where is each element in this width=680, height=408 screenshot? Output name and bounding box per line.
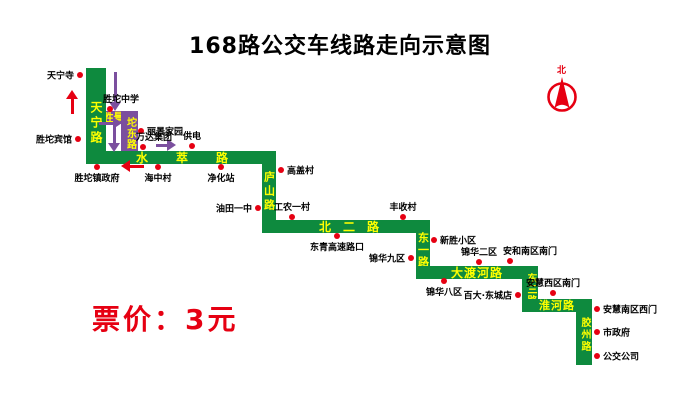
stop-dot-icon — [278, 167, 284, 173]
stop-dot-icon — [218, 164, 224, 170]
stop-label: 东青高速路口 — [310, 240, 364, 253]
stop-label: 净化站 — [207, 171, 234, 184]
stop-label: 供电 — [183, 129, 201, 142]
stop-dot-icon — [255, 205, 261, 211]
stop-dot-icon — [441, 278, 447, 284]
stop-dot-icon — [431, 237, 437, 243]
bus-stop: 海中村 — [155, 164, 161, 170]
stop-label: 海中村 — [144, 171, 171, 184]
stop-dot-icon — [515, 292, 521, 298]
bus-stop: 锦华二区 — [476, 259, 482, 265]
road-label: 东一路 — [418, 232, 429, 268]
stop-label: 丰收村 — [389, 200, 416, 213]
road-segment-beierlu: 北二路 — [262, 220, 430, 233]
stop-dot-icon — [140, 144, 146, 150]
stop-label: 锦华二区 — [461, 245, 497, 258]
road-label: 北二路 — [301, 221, 391, 233]
stop-dot-icon — [189, 143, 195, 149]
compass-icon — [540, 70, 584, 118]
stop-label: 万达集团 — [136, 130, 172, 143]
route-up-arrow-icon — [66, 90, 78, 114]
stop-label: 安和南区南门 — [503, 244, 557, 257]
road-segment-jiaozhoulu: 胶州路 — [576, 299, 592, 365]
road-label: 坨东路 — [125, 117, 135, 150]
stop-dot-icon — [550, 290, 556, 296]
stop-dot-icon — [594, 353, 600, 359]
stop-dot-icon — [77, 72, 83, 78]
stop-label: 安慧西区南门 — [526, 276, 580, 289]
stop-label: 工农一村 — [274, 200, 310, 213]
bus-stop: 安慧西区南门 — [550, 290, 556, 296]
stop-dot-icon — [408, 255, 414, 261]
bus-stop: 公交公司 — [594, 353, 600, 359]
bus-stop: 胜坨镇政府 — [94, 164, 100, 170]
stop-label: 百大·东城店 — [464, 289, 512, 302]
route-diagram: 168路公交车线路走向示意图 胜景路 坨东路 天宁路 水萃路 庐山路 北二路 东… — [0, 0, 680, 408]
bus-stop: 净化站 — [218, 164, 224, 170]
stop-label: 市政府 — [603, 326, 630, 339]
diagram-title: 168路公交车线路走向示意图 — [0, 28, 680, 60]
bus-stop: 胜坨宾馆 — [75, 136, 81, 142]
bus-stop: 东青高速路口 — [334, 233, 340, 239]
stop-label: 胜坨中学 — [103, 92, 139, 105]
stop-label: 胜坨镇政府 — [74, 171, 119, 184]
fare-notice: 票价：3元 — [92, 298, 238, 338]
stop-dot-icon — [476, 259, 482, 265]
stop-dot-icon — [289, 214, 295, 220]
bus-stop: 安和南区南门 — [507, 258, 513, 264]
road-segment-tianninglu: 天宁路 — [86, 68, 106, 164]
bus-stop: 丰收村 — [400, 214, 406, 220]
road-label: 淮河路 — [539, 300, 575, 311]
stop-dot-icon — [507, 258, 513, 264]
stop-dot-icon — [75, 136, 81, 142]
stop-label: 胜坨宾馆 — [36, 133, 72, 146]
stop-dot-icon — [400, 214, 406, 220]
bus-stop: 百大·东城店 — [515, 292, 521, 298]
bus-stop: 锦华九区 — [408, 255, 414, 261]
loop-down-arrow2-icon — [108, 126, 120, 153]
bus-stop: 油田一中 — [255, 205, 261, 211]
bus-stop: 高盖村 — [278, 167, 284, 173]
bus-stop: 供电 — [189, 143, 195, 149]
bus-stop: 天宁寺 — [77, 72, 83, 78]
bus-stop: 万达集团 — [140, 144, 146, 150]
stop-dot-icon — [594, 329, 600, 335]
stop-label: 安慧南区西门 — [603, 303, 657, 316]
road-label: 胶州路 — [579, 317, 589, 353]
road-label: 庐山路 — [264, 171, 275, 213]
stop-dot-icon — [334, 233, 340, 239]
road-segment-daduhelu: 大渡河路 — [416, 266, 538, 279]
bus-stop: 胜坨中学 — [107, 106, 113, 112]
stop-dot-icon — [94, 164, 100, 170]
stop-label: 锦华九区 — [369, 252, 405, 265]
stop-dot-icon — [155, 164, 161, 170]
stop-label: 天宁寺 — [47, 69, 74, 82]
bus-stop: 新胜小区 — [431, 237, 437, 243]
bus-stop: 安慧南区西门 — [594, 306, 600, 312]
bus-stop: 锦华八区 — [441, 278, 447, 284]
stop-label: 高盖村 — [287, 164, 314, 177]
route-left-arrow-icon — [121, 160, 145, 172]
bus-stop: 工农一村 — [289, 214, 295, 220]
stop-label: 公交公司 — [603, 350, 639, 363]
stop-label: 油田一中 — [216, 202, 252, 215]
bus-stop: 市政府 — [594, 329, 600, 335]
road-label: 大渡河路 — [451, 267, 503, 279]
stop-dot-icon — [594, 306, 600, 312]
stop-label: 锦华八区 — [426, 285, 462, 298]
stop-dot-icon — [107, 106, 113, 112]
